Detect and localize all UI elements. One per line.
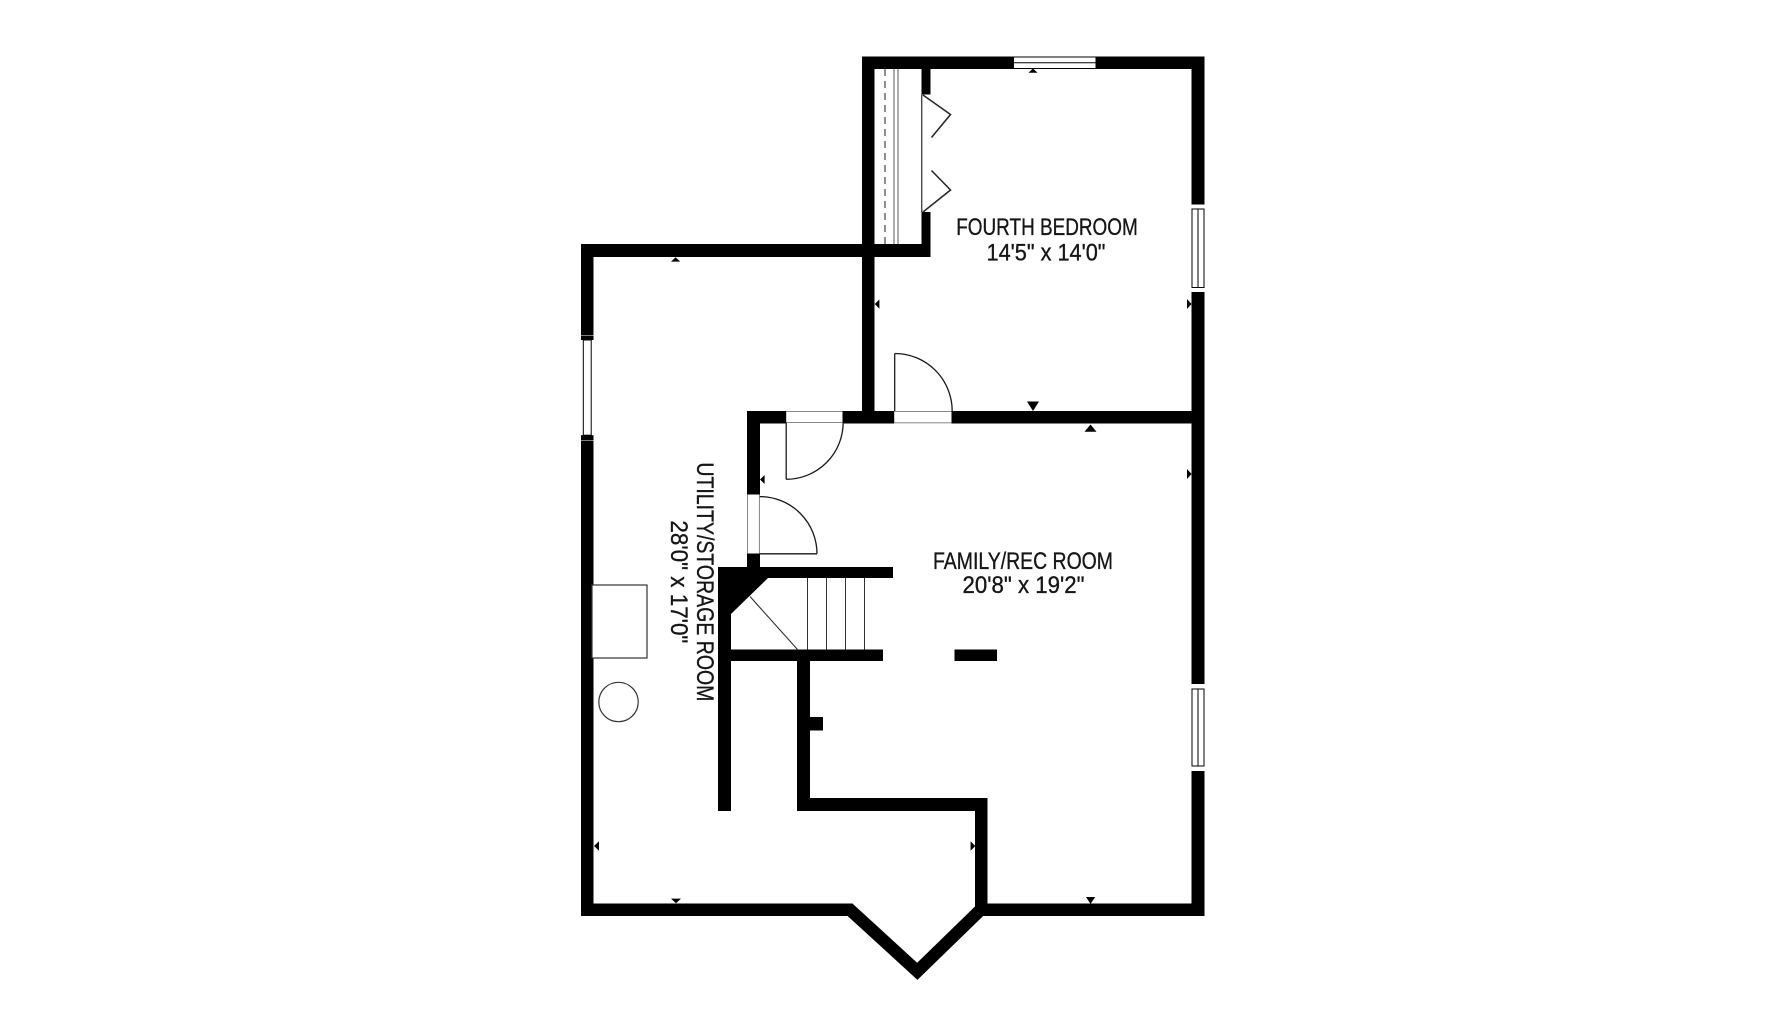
svg-text:UTILITY/STORAGE ROOM: UTILITY/STORAGE ROOM (691, 462, 718, 701)
svg-text:28'0" x 17'0": 28'0" x 17'0" (665, 520, 692, 643)
svg-text:14'5" x 14'0": 14'5" x 14'0" (987, 240, 1106, 267)
svg-text:20'8" x 19'2": 20'8" x 19'2" (963, 572, 1085, 599)
svg-text:FAMILY/REC ROOM: FAMILY/REC ROOM (933, 548, 1113, 575)
svg-text:FOURTH BEDROOM: FOURTH BEDROOM (956, 214, 1138, 241)
